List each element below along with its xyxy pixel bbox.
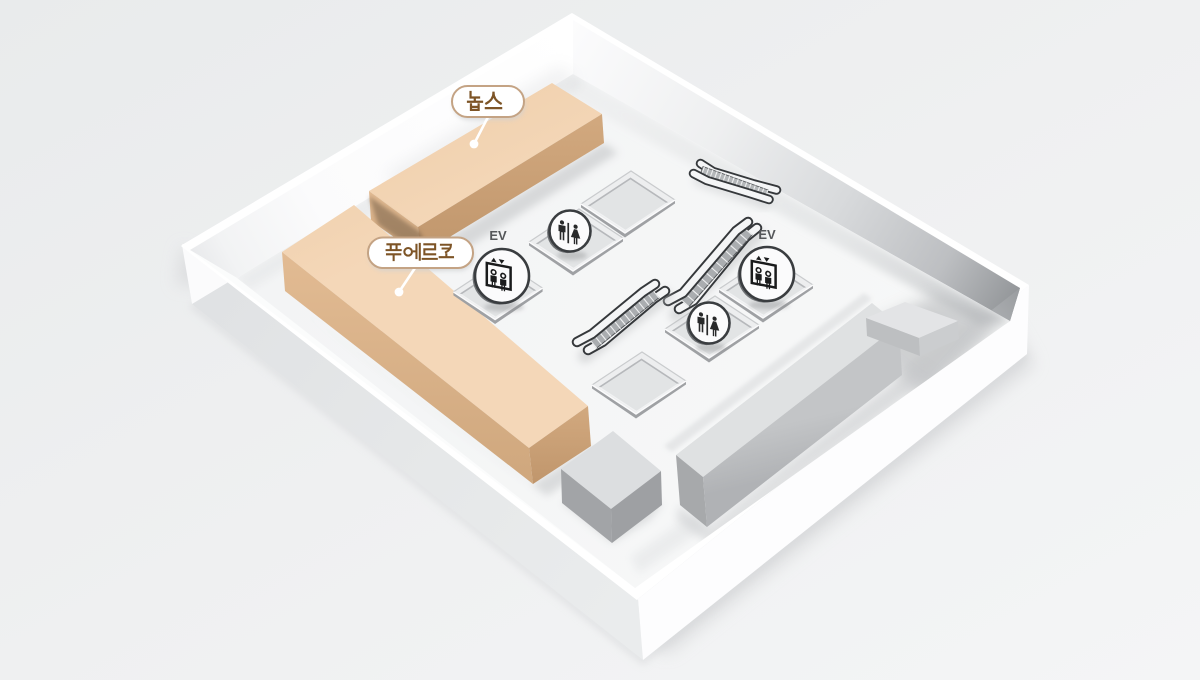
svg-text:EV: EV — [489, 228, 507, 243]
svg-text:EV: EV — [758, 227, 776, 242]
